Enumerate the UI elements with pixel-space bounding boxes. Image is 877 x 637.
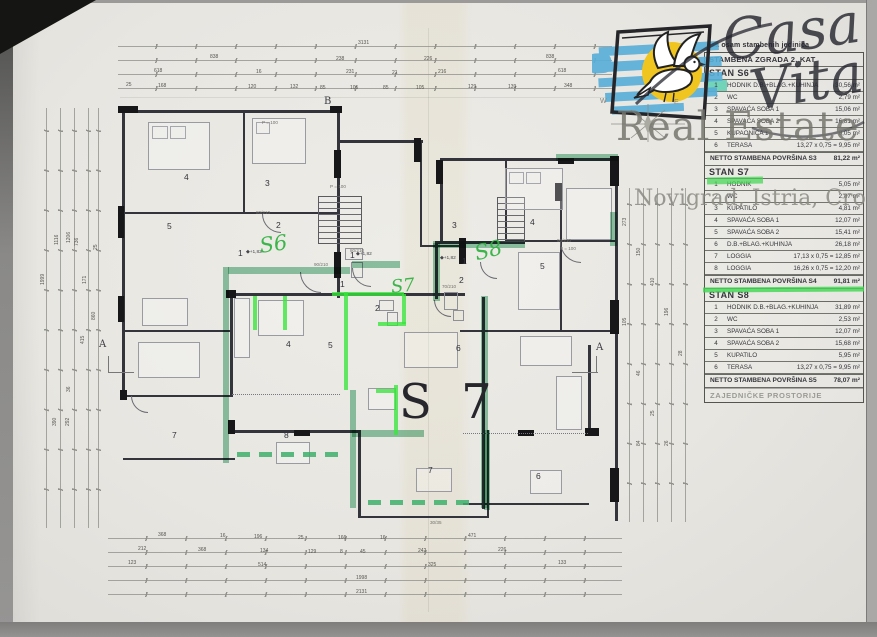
- highlighter-teal: [610, 212, 617, 246]
- wall-section: [334, 252, 341, 278]
- dimension-number: 25: [298, 535, 304, 541]
- dotted-line: [232, 394, 340, 395]
- dimension-number: 368: [158, 532, 166, 538]
- dimension-number: 45: [360, 549, 366, 555]
- dimension-number: 166: [338, 535, 346, 541]
- room-label: TERASA: [727, 362, 797, 373]
- scanner-edge-right: [866, 0, 877, 637]
- dimension-number: 129: [308, 549, 316, 555]
- room-area: 17,13 x 0,75 = 12,85 m²: [793, 251, 863, 262]
- section-marker: A: [596, 342, 603, 353]
- highlighter-lime: [376, 389, 396, 393]
- room-number: 4: [530, 217, 535, 227]
- dimension-number: 2131: [356, 589, 367, 595]
- room-number: 1: [238, 248, 243, 258]
- dimension-number: 410: [650, 278, 656, 286]
- brand-real-estate-text: Real Estate: [616, 104, 860, 150]
- furniture: [258, 300, 304, 336]
- wall-section: [585, 428, 599, 436]
- highlighter-teal: [228, 267, 350, 274]
- room-label: KUPATILO: [727, 350, 839, 361]
- table-row: 7LOGGIA17,13 x 0,75 = 12,85 m²: [705, 251, 863, 263]
- dimension-number: 415: [80, 336, 86, 344]
- table-row: 1HODNIK D.B.+BLAG.+KUHINJA31,89 m²: [705, 302, 863, 314]
- room-number: 5: [328, 340, 333, 350]
- highlighter-teal: [352, 261, 400, 268]
- room-number: 7: [172, 430, 177, 440]
- table-row: 5KUPATILO5,95 m²: [705, 350, 863, 362]
- furniture: [520, 336, 572, 366]
- highlighter-lime: [253, 296, 257, 330]
- dimension-number: 133: [558, 560, 566, 566]
- dimension-number: 196: [664, 308, 670, 316]
- highlighter-dashed: [237, 452, 345, 457]
- room-number: 3: [452, 220, 457, 230]
- table-row: 6TERASA13,27 x 0,75 = 9,95 m²: [705, 362, 863, 374]
- dimension-number: 171: [82, 276, 88, 284]
- room-area: 12,07 m²: [835, 326, 863, 337]
- dimension-number: 28: [678, 350, 684, 356]
- handwritten-apartment-label: S7: [390, 275, 416, 298]
- highlighter-lime: [283, 296, 287, 330]
- highlighter-teal: [352, 430, 424, 437]
- room-number: 6: [536, 471, 541, 481]
- room-number: 2: [375, 303, 380, 313]
- dimension-number: 8: [340, 549, 343, 555]
- dimension-number: 105: [622, 318, 628, 326]
- wall-section: [120, 390, 127, 400]
- room-label: SPAVAĆA SOBA 1: [727, 215, 835, 226]
- room-number: 1: [340, 279, 345, 289]
- dimension-line: [627, 188, 632, 522]
- dimension-number: 46: [636, 370, 642, 376]
- room-number: 4: [286, 339, 291, 349]
- room-number: 1: [462, 256, 467, 266]
- dimension-number: 1998: [356, 575, 367, 581]
- room-area: 31,89 m²: [835, 302, 863, 313]
- dimension-number: 292: [65, 418, 71, 426]
- highlighter-lime: [378, 322, 406, 326]
- dimension-number: 212: [138, 546, 146, 552]
- dimension-number: 471: [468, 533, 476, 539]
- row-number: 6: [705, 362, 727, 373]
- row-number: 4: [705, 215, 727, 226]
- dimension-number: 134: [260, 548, 268, 554]
- handwritten-apartment-label: S6: [258, 230, 289, 258]
- highlighter-teal: [223, 267, 229, 463]
- room-number: 7: [428, 465, 433, 475]
- room-number: 5: [167, 221, 172, 231]
- table-row: 4SPAVAĆA SOBA 215,68 m²: [705, 338, 863, 350]
- row-number: 8: [705, 263, 727, 274]
- room-label: SPAVAĆA SOBA 2: [727, 338, 835, 349]
- table-row: 3SPAVAĆA SOBA 112,07 m²: [705, 326, 863, 338]
- fixture: [453, 310, 464, 321]
- dimension-number: 16: [380, 535, 386, 541]
- room-area: 12,07 m²: [835, 215, 863, 226]
- wall: [230, 293, 233, 397]
- stairs: [318, 196, 362, 244]
- row-number: 7: [705, 251, 727, 262]
- room-label: SPAVAĆA SOBA 1: [727, 326, 835, 337]
- apartment-s7-big-label: S 7: [399, 374, 499, 430]
- wall: [124, 330, 232, 332]
- room-number: 6: [456, 343, 461, 353]
- row-number: 3: [705, 326, 727, 337]
- highlighter-lime: [402, 294, 406, 324]
- dimension-number: 368: [198, 547, 206, 553]
- room-number: 2: [459, 275, 464, 285]
- dimension-number: 860: [91, 312, 97, 320]
- dimension-number: 1999: [40, 274, 46, 285]
- dimension-number: 25: [93, 244, 99, 250]
- scanned-floor-plan-page: 3131838238226838618162312121661825168120…: [0, 0, 877, 637]
- furniture: [416, 468, 452, 492]
- dimension-line: [655, 188, 660, 522]
- room-area: 15,68 m²: [835, 338, 863, 349]
- wall: [124, 212, 339, 214]
- wall-section: [610, 300, 619, 334]
- table-total-row: NETTO STAMBENA POVRŠINA S491,81 m²: [705, 275, 863, 289]
- room-label: D.B.+BLAG.+KUHINJA: [727, 239, 835, 250]
- highlighter-teal: [350, 390, 356, 508]
- furniture: [142, 298, 188, 326]
- row-number: 2: [705, 314, 727, 325]
- highlighter-teal: [484, 430, 490, 510]
- total-label: NETTO STAMBENA POVRŠINA S5: [705, 375, 834, 387]
- table-footer: ZAJEDNIČKE PROSTORIJE: [705, 388, 863, 402]
- table-row: 8LOGGIA16,26 x 0,75 = 12,20 m²: [705, 263, 863, 275]
- wall-section: [610, 468, 619, 502]
- plan-note: 80/210: [256, 210, 270, 215]
- table-row: 6D.B.+BLAG.+KUHINJA26,18 m²: [705, 239, 863, 251]
- highlighter-lime: [344, 292, 348, 390]
- wall: [358, 516, 489, 518]
- room-label: HODNIK D.B.+BLAG.+KUHINJA: [727, 302, 835, 313]
- plan-note: 80/210: [350, 248, 364, 253]
- dimension-number: 196: [254, 534, 262, 540]
- table-row: 4SPAVAĆA SOBA 112,07 m²: [705, 215, 863, 227]
- furniture: [234, 298, 250, 358]
- dimension-number: 325: [428, 562, 436, 568]
- row-number: 6: [705, 239, 727, 250]
- wall: [123, 458, 235, 460]
- dimension-line: [641, 188, 646, 522]
- room-area: 26,18 m²: [835, 239, 863, 250]
- room-number: 5: [540, 261, 545, 271]
- dimension-number: 242: [418, 548, 426, 554]
- plan-note: 90/210: [557, 238, 571, 243]
- level-mark: ◆+1,82: [440, 256, 456, 261]
- dimension-number: 226: [498, 547, 506, 553]
- leader-line: [108, 372, 134, 373]
- plan-note: 30/35: [430, 520, 442, 525]
- total-value: 78,07 m²: [834, 375, 863, 387]
- furniture: [404, 332, 458, 368]
- wall-section: [228, 420, 235, 434]
- leader-line: [596, 356, 597, 372]
- dimension-number: 1116: [54, 235, 60, 245]
- dimension-number: 150: [636, 248, 642, 256]
- scanner-edge-bottom: [0, 622, 877, 637]
- leader-line: [108, 356, 109, 372]
- dimension-number: 273: [622, 218, 628, 226]
- furniture: [556, 376, 582, 430]
- room-number: 8: [284, 430, 289, 440]
- room-label: WC: [727, 314, 839, 325]
- room-area: 13,27 x 0,75 = 9,95 m²: [797, 362, 863, 373]
- wall: [358, 430, 361, 518]
- plan-note: 90/210: [314, 262, 328, 267]
- dimension-number: 16: [220, 533, 226, 539]
- plan-note: P = 100: [560, 246, 576, 251]
- dimension-number: 123: [128, 560, 136, 566]
- room-area: 15,41 m²: [835, 227, 863, 238]
- room-area: 5,95 m²: [839, 350, 863, 361]
- dimension-line: [669, 188, 674, 522]
- fixture: [379, 300, 394, 311]
- wall-section: [294, 430, 310, 436]
- dimension-number: 736: [74, 238, 80, 246]
- row-number: 4: [705, 338, 727, 349]
- brand-location-text: Novigrad, Istria, Croatia: [634, 186, 877, 211]
- row-number: 1: [705, 302, 727, 313]
- wall-section: [118, 296, 124, 322]
- room-area: 16,26 x 0,75 = 12,20 m²: [793, 263, 863, 274]
- dimension-line: [108, 564, 622, 569]
- dimension-number: 36: [66, 386, 72, 392]
- dimension-number: 26: [664, 440, 670, 446]
- furniture: [138, 342, 200, 378]
- scanner-edge-left: [0, 0, 13, 637]
- row-number: 5: [705, 227, 727, 238]
- section-marker: A: [99, 339, 106, 350]
- furniture: [530, 470, 562, 494]
- row-number: 5: [705, 350, 727, 361]
- dimension-number: 1206: [66, 232, 72, 243]
- table-total-row: NETTO STAMBENA POVRŠINA S578,07 m²: [705, 374, 863, 388]
- room-area: 2,53 m²: [839, 314, 863, 325]
- room-label: SPAVAĆA SOBA 2: [727, 227, 835, 238]
- room-number: 2: [276, 220, 281, 230]
- room-label: LOGGIA: [727, 263, 793, 274]
- wall: [588, 345, 591, 433]
- dimension-number: 25: [650, 410, 656, 416]
- highlighter-dashed: [368, 500, 478, 505]
- total-label: NETTO STAMBENA POVRŠINA S4: [705, 276, 834, 288]
- furniture: [518, 252, 560, 310]
- dimension-number: 390: [52, 418, 58, 426]
- total-value: 91,81 m²: [834, 276, 863, 288]
- table-row: 2WC2,53 m²: [705, 314, 863, 326]
- plan-note: 70/210: [442, 284, 456, 289]
- dimension-number: 514: [258, 562, 266, 568]
- room-label: LOGGIA: [727, 251, 793, 262]
- table-row: 5SPAVAĆA SOBA 215,41 m²: [705, 227, 863, 239]
- wall-section: [118, 206, 124, 238]
- leader-line: [572, 372, 598, 373]
- highlighter-teal: [433, 243, 440, 301]
- dimension-line: [108, 536, 622, 541]
- dimension-number: 84: [636, 440, 642, 446]
